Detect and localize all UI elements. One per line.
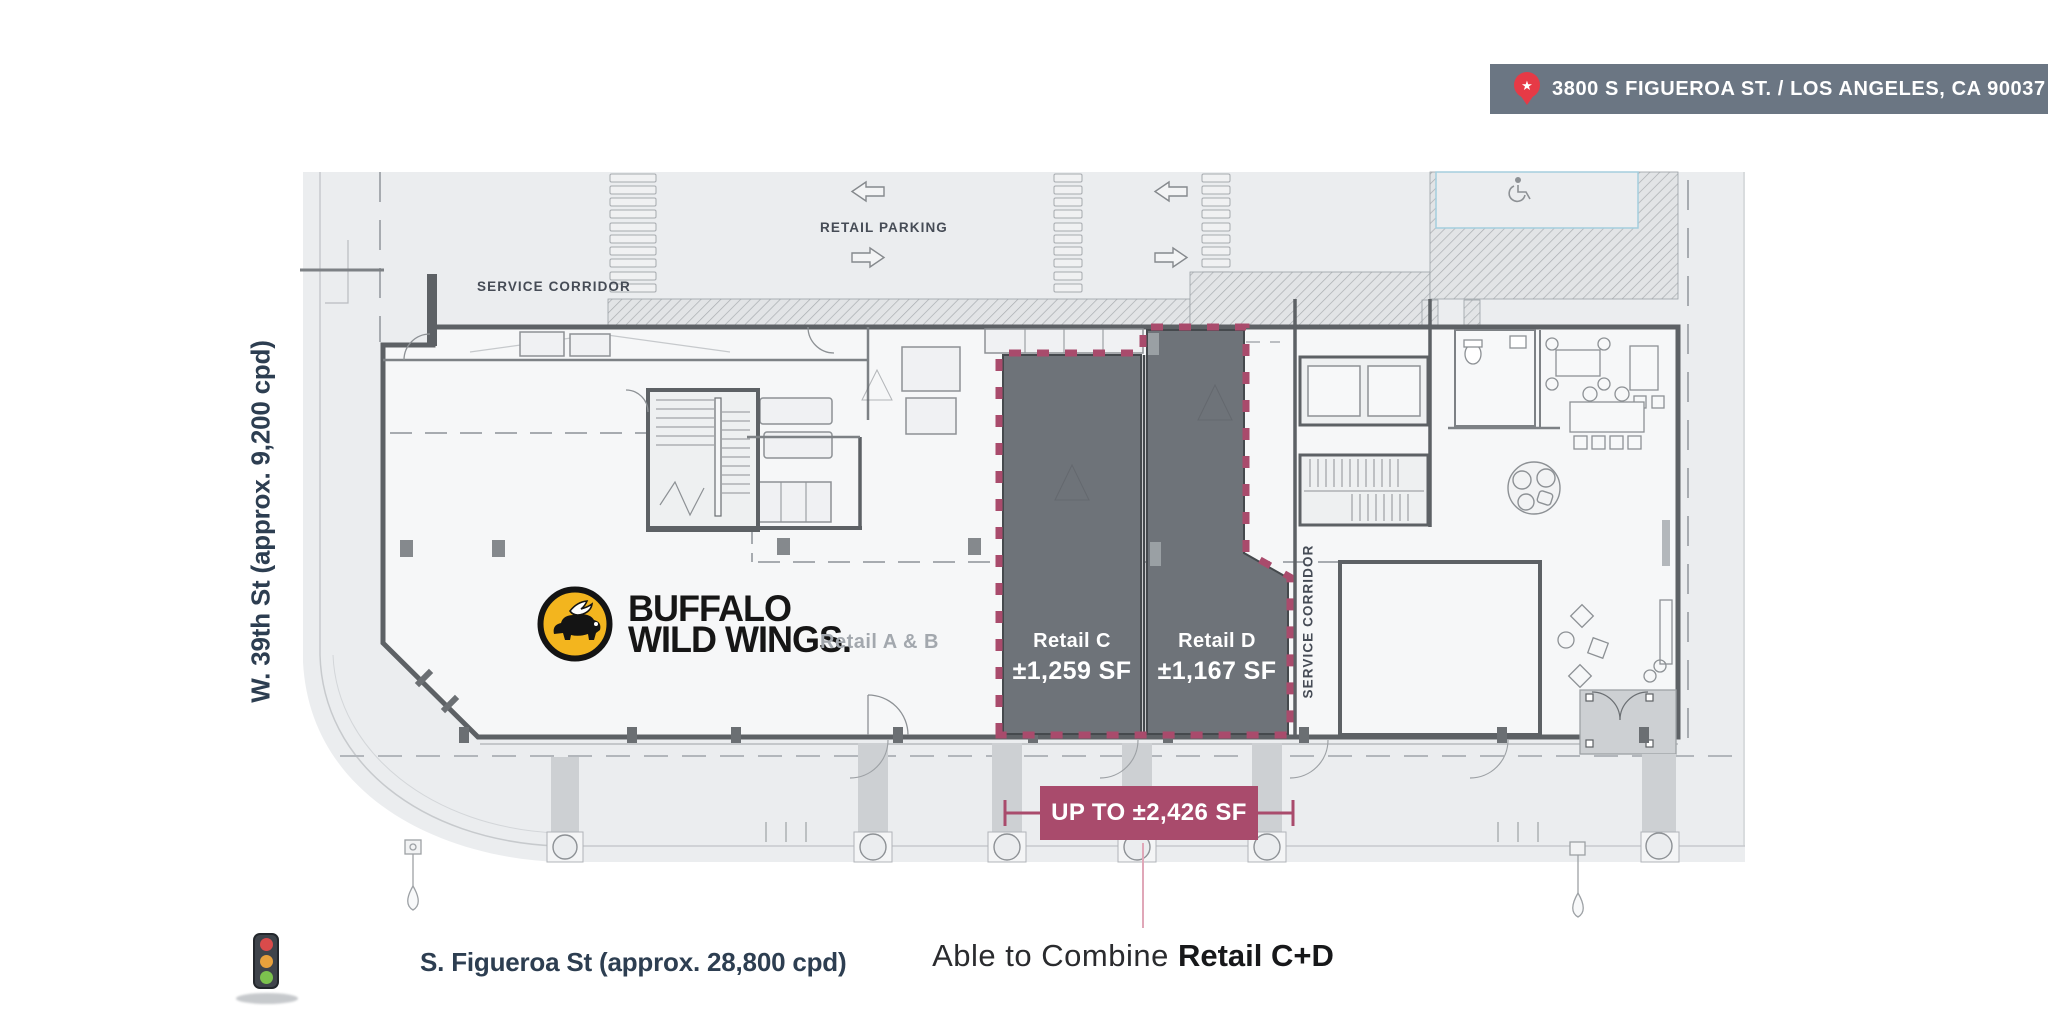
traffic-light-red [260,938,273,951]
street-label-west: W. 39th St (approx. 9,200 cpd) [246,336,277,708]
tenant-logo: BUFFALO WILD WINGS. [537,586,851,662]
flyer-page: ★ 3800 S FIGUEROA ST. / LOS ANGELES, CA … [0,0,2048,1024]
buffalo-wild-wings-icon [537,586,613,662]
retail-parking-label: RETAIL PARKING [820,220,948,235]
retail-ab-label: Retail A & B [820,631,939,654]
service-corridor-label-top: SERVICE CORRIDOR [477,279,631,294]
combine-note: Able to Combine Retail C+D [883,938,1383,974]
street-label-south: S. Figueroa St (approx. 28,800 cpd) [420,947,846,978]
availability-banner: UP TO ±2,426 SF [1040,786,1258,840]
traffic-light-shadow [236,993,298,1004]
location-pin-icon: ★ [1514,72,1540,106]
service-corridor-label-right: SERVICE CORRIDOR [1301,542,1316,702]
traffic-light-amber [260,955,273,968]
retail-d-label: Retail D ±1,167 SF [1150,628,1284,686]
retail-c-label: Retail C ±1,259 SF [1003,628,1141,686]
tenant-logo-text: BUFFALO WILD WINGS. [628,593,851,655]
traffic-light-icon [253,933,279,989]
traffic-light-green [260,971,273,984]
property-address: 3800 S FIGUEROA ST. / LOS ANGELES, CA 90… [1552,78,2046,101]
address-banner: ★ 3800 S FIGUEROA ST. / LOS ANGELES, CA … [1490,64,2048,114]
floor-plan-drawing [0,0,2048,1024]
